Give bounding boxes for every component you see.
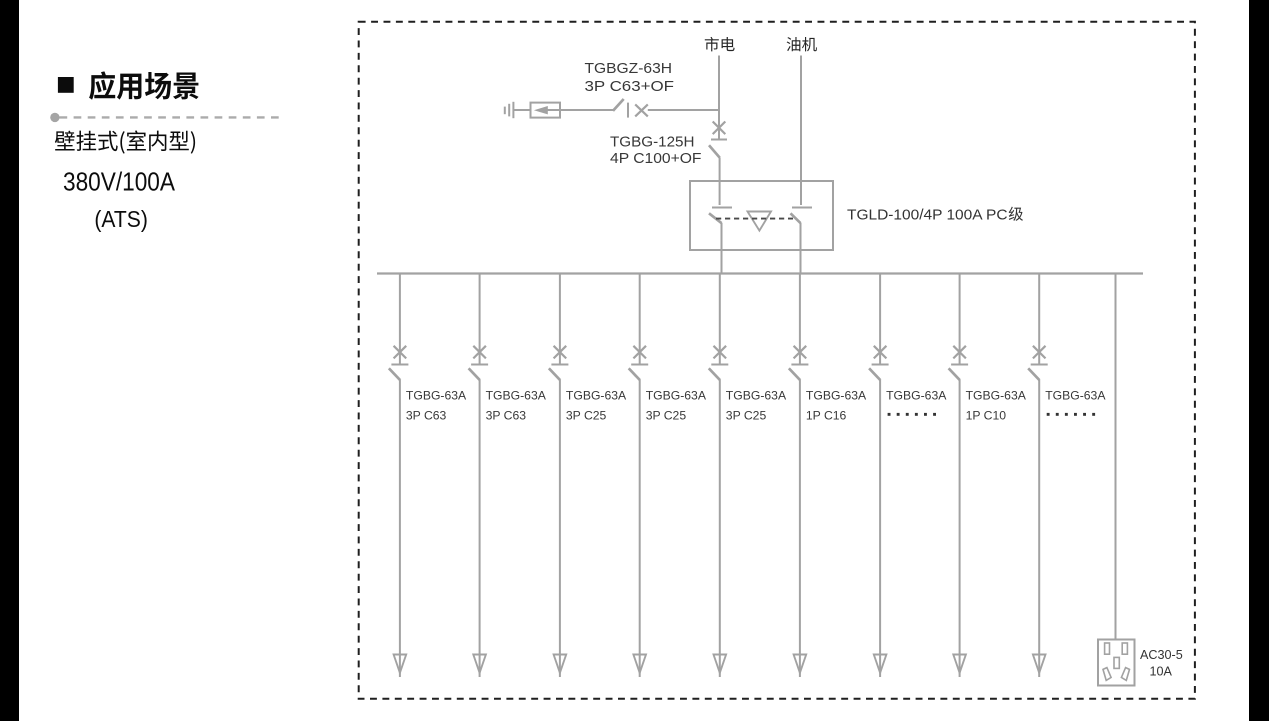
svg-text:3P C63+OF: 3P C63+OF — [585, 78, 675, 95]
svg-text:TGBG-63A: TGBG-63A — [726, 388, 787, 402]
svg-text:TGBG-63A: TGBG-63A — [1045, 388, 1106, 402]
svg-text:1P C10: 1P C10 — [966, 408, 1007, 422]
svg-text:10A: 10A — [1150, 665, 1173, 679]
svg-text:TGBG-63A: TGBG-63A — [886, 388, 947, 402]
svg-text:3P C25: 3P C25 — [726, 408, 767, 422]
svg-text:3P C25: 3P C25 — [646, 408, 687, 422]
svg-text:1P C16: 1P C16 — [806, 408, 847, 422]
svg-text:TGBG-63A: TGBG-63A — [566, 388, 627, 402]
svg-text:TGLD-100/4P 100A PC: TGLD-100/4P 100A PC — [847, 207, 1008, 224]
svg-text:TGBG-63A: TGBG-63A — [966, 388, 1027, 402]
svg-text:3P C25: 3P C25 — [566, 408, 607, 422]
svg-text:TGBG-63A: TGBG-63A — [806, 388, 867, 402]
svg-text:TGBG-63A: TGBG-63A — [646, 388, 707, 402]
svg-text:(ATS): (ATS) — [94, 206, 147, 232]
svg-text:TGBG-63A: TGBG-63A — [486, 388, 547, 402]
svg-text:TGBG-63A: TGBG-63A — [406, 388, 467, 402]
svg-text:4P C100+OF: 4P C100+OF — [610, 150, 702, 167]
svg-text:TGBGZ-63H: TGBGZ-63H — [585, 60, 673, 77]
svg-text:3P C63: 3P C63 — [406, 408, 447, 422]
svg-text:TGBG-125H: TGBG-125H — [610, 133, 695, 150]
svg-text:AC30-5: AC30-5 — [1140, 648, 1183, 662]
svg-text:380V/100A: 380V/100A — [63, 168, 175, 196]
svg-text:3P C63: 3P C63 — [486, 408, 527, 422]
